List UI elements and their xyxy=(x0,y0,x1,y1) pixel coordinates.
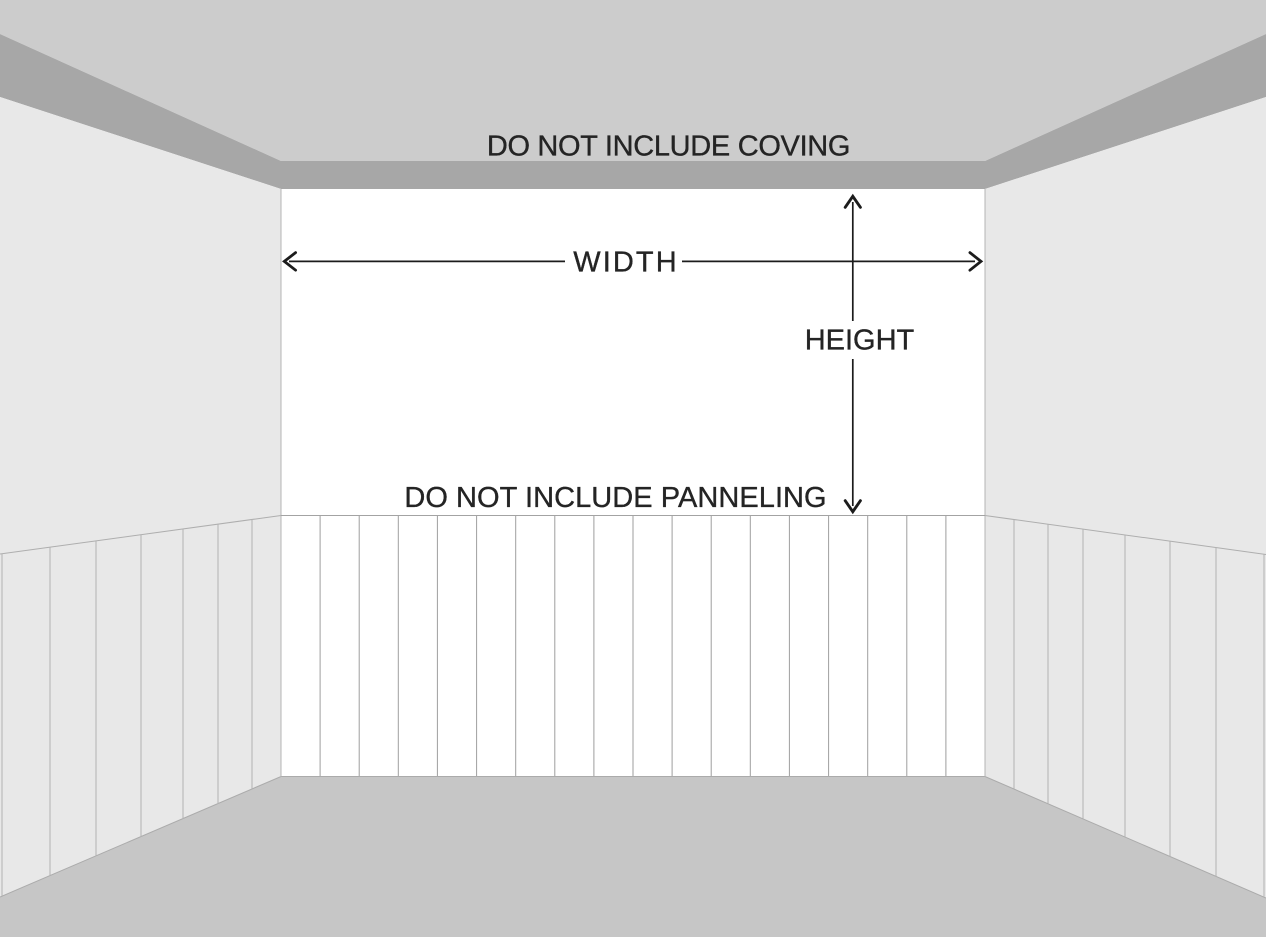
svg-text:WIDTH: WIDTH xyxy=(573,247,679,279)
svg-text:DO NOT INCLUDE PANNELING: DO NOT INCLUDE PANNELING xyxy=(404,482,826,514)
svg-text:DO NOT INCLUDE COVING: DO NOT INCLUDE COVING xyxy=(487,131,850,163)
svg-text:HEIGHT: HEIGHT xyxy=(805,325,915,357)
